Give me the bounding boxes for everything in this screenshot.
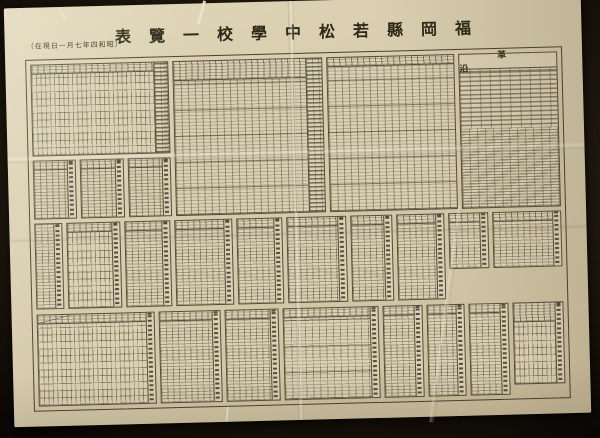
library-table <box>468 303 510 396</box>
table-title-strip <box>67 161 76 219</box>
table-main <box>31 63 155 156</box>
applicants-table <box>124 221 172 308</box>
document-outline-border: 革沿 <box>25 46 571 411</box>
paper-crease-bottom <box>225 407 228 422</box>
staff-names-table <box>326 54 458 213</box>
residence-table <box>37 312 157 407</box>
physician-table <box>448 213 489 270</box>
grid-table <box>66 222 122 309</box>
table-title-strip <box>114 159 123 217</box>
table-main <box>173 59 309 216</box>
strip-table <box>34 223 64 310</box>
history-date-columns <box>459 67 557 128</box>
left-small-tables <box>33 157 172 220</box>
paper-sheet: （在現日一月七年四和昭） 表覽一校學中松若縣岡福 <box>4 0 591 427</box>
table-main <box>327 55 457 212</box>
top-band: 革沿 <box>30 51 561 220</box>
document-title: 表覽一校學中松若縣岡福 <box>4 12 581 51</box>
enrollment-table <box>236 218 284 305</box>
statistics-table <box>286 216 348 303</box>
middle-band <box>34 211 563 311</box>
transfer-table <box>350 215 394 302</box>
small-table-1 <box>33 160 78 221</box>
school-hours-table <box>492 211 562 269</box>
table-row-labels <box>153 62 169 152</box>
table-side-column <box>305 58 325 212</box>
occupation-table <box>159 310 223 404</box>
table-body <box>327 64 457 212</box>
small-table-3 <box>127 157 172 218</box>
history-section: 革沿 <box>458 51 561 209</box>
table-body-grid <box>31 72 155 156</box>
expenses-table <box>426 304 466 397</box>
left-column <box>30 61 172 220</box>
history-text-columns <box>461 126 560 208</box>
curriculum-grid-table <box>30 61 170 156</box>
graduates-table <box>396 214 446 301</box>
comparison-table <box>224 309 280 402</box>
paper-crease-top-left <box>59 9 67 20</box>
alumni-table <box>382 305 424 398</box>
funding-grid-table <box>512 301 565 384</box>
photo-backdrop: （在現日一月七年四和昭） 表覽一校學中松若縣岡福 <box>0 0 600 438</box>
staff-roster-table <box>172 57 326 216</box>
small-table-2 <box>80 158 125 219</box>
five-year-table <box>282 306 380 400</box>
table-title-strip <box>162 158 171 216</box>
admissions-table <box>174 219 234 306</box>
table-body <box>174 78 309 216</box>
bottom-band <box>37 301 566 406</box>
